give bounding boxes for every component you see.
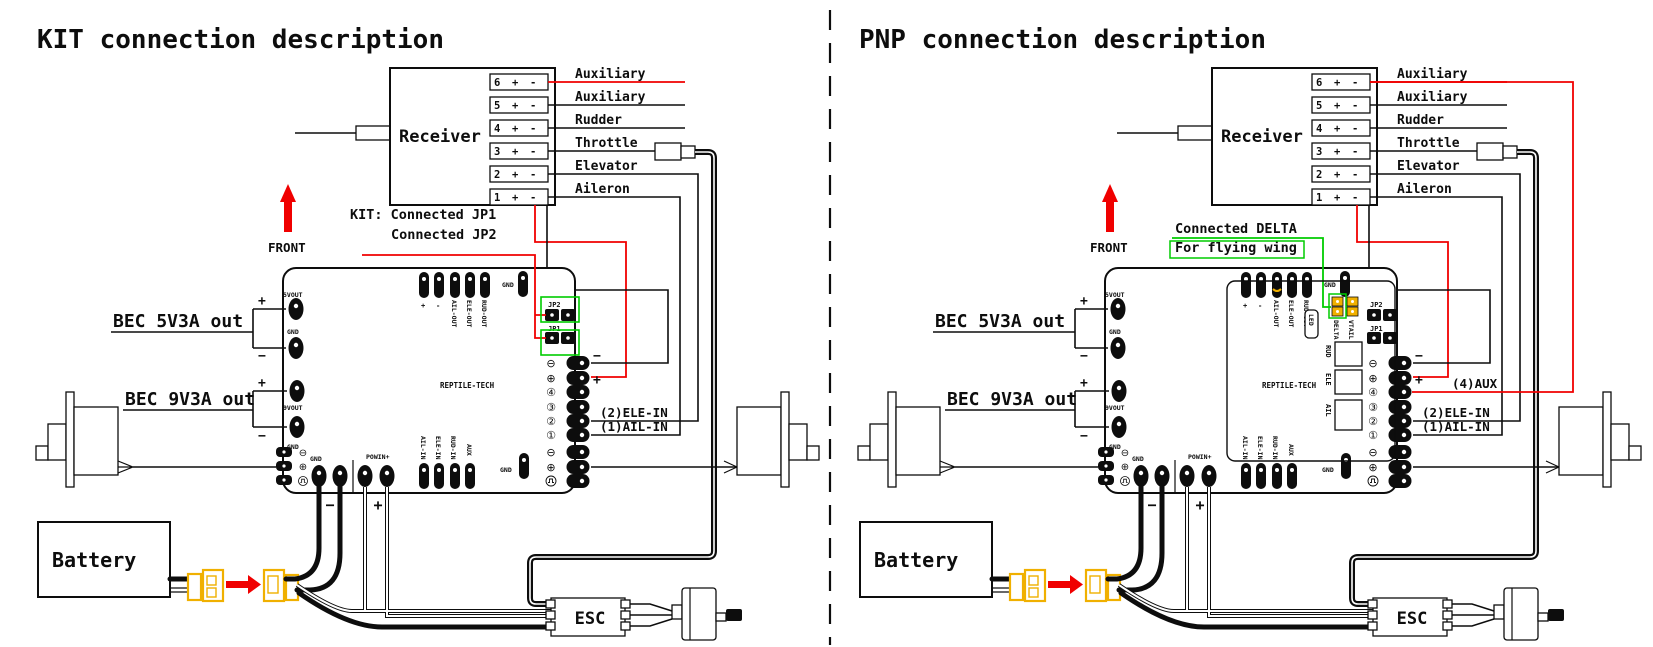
kit-diagram-half — [36, 67, 819, 640]
rud-port-label: RUD — [1324, 345, 1332, 358]
pin-hole — [1351, 300, 1354, 303]
kit-title: KIT connection description — [37, 25, 444, 55]
wiring-diagram-page: Receiver 6 + - 5 + - 4 + - 3 — [0, 0, 1653, 647]
pin-hole — [1336, 310, 1339, 313]
pnp-note-line1: Connected DELTA — [1175, 221, 1297, 237]
kit-note-line2: Connected JP2 — [391, 227, 497, 243]
led-label: LED — [1307, 314, 1315, 326]
ail-port-label: AIL — [1324, 404, 1332, 417]
aux-wire-label: (4)AUX — [1452, 376, 1498, 391]
pnp-diagram-half — [858, 67, 1641, 640]
kit-note-line1: KIT: Connected JP1 — [350, 207, 496, 223]
delta-label: DELTA — [1332, 320, 1340, 340]
pin-hole — [1351, 310, 1354, 313]
ele-port — [1335, 370, 1362, 394]
vtail-label: VTAIL — [1347, 320, 1355, 340]
ele-port-label: ELE — [1324, 373, 1332, 386]
ail-port — [1335, 400, 1362, 430]
pnp-title: PNP connection description — [859, 25, 1266, 55]
pnp-note-line2: For flying wing — [1175, 240, 1297, 256]
connection-diagram-svg: Receiver 6 + - 5 + - 4 + - 3 — [0, 0, 1653, 647]
rud-port — [1335, 342, 1362, 366]
pin-hole — [1336, 300, 1339, 303]
